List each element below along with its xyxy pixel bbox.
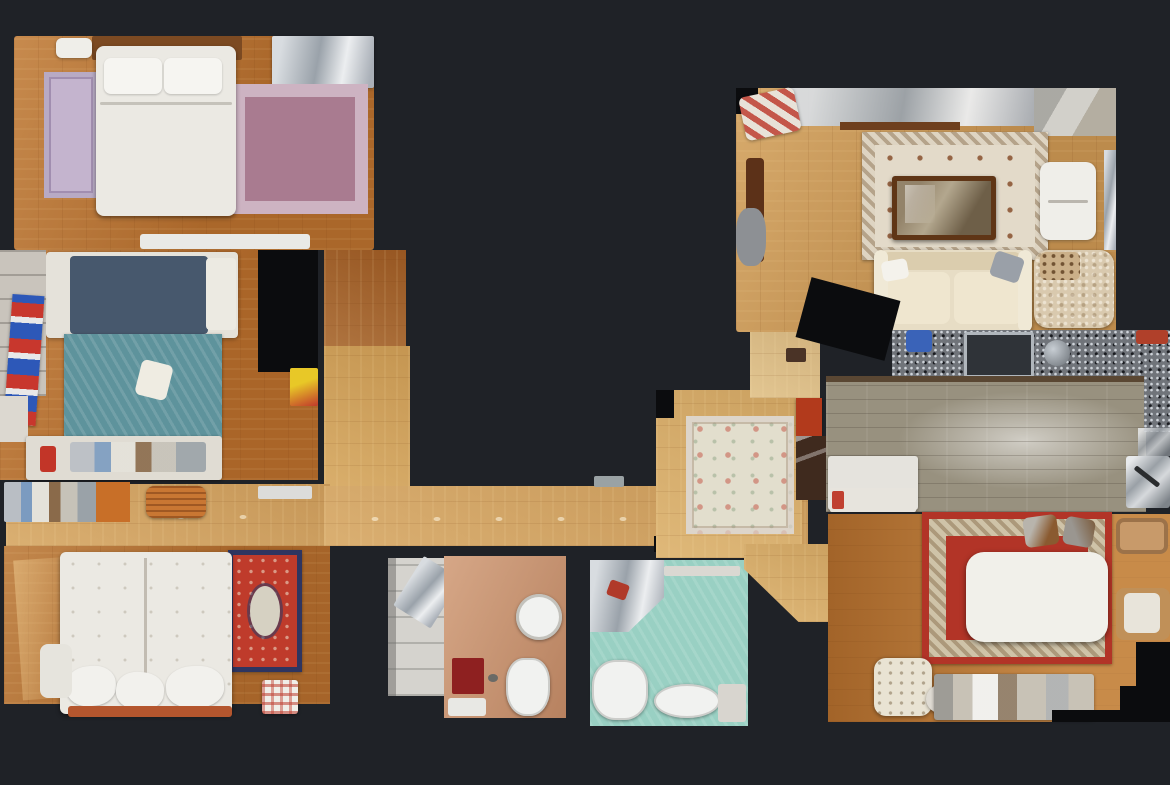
window-band [788,88,1044,126]
pillow [165,665,225,710]
room-dining[interactable] [828,514,1170,722]
dining-table [966,552,1108,642]
rug-floral [686,416,794,534]
fluffy-chair [1034,250,1114,328]
chair-metal [1062,516,1096,549]
dishwasher [1126,456,1170,508]
coffee-table [892,176,996,240]
radiator [140,234,310,249]
striped-pouf [146,486,206,518]
wardrobe-mirror [272,36,374,88]
bidet-sink [654,684,720,718]
room-bedroom-middle-left[interactable] [0,250,318,480]
console-white [830,488,916,512]
rug-oriental-medallion [250,586,280,636]
pillow [64,663,118,708]
wall-void [656,390,674,418]
room-bathroom-teal[interactable] [590,560,748,726]
room-bedroom-top-left[interactable] [14,36,374,250]
armchair-dotted [874,658,932,716]
chair-seat [1124,593,1160,633]
toilet [592,660,648,720]
wall-void [258,250,318,372]
desk-clutter [70,442,206,472]
red-cabinet [796,398,822,436]
console-red-item [832,491,844,509]
glass-reflection [905,185,935,223]
bath-clutter [448,698,486,716]
yellow-magazine-rack [290,368,318,406]
blue-dish [906,330,932,352]
cooking-pot [1044,340,1070,366]
bath-clutter [718,684,746,722]
leopard-pillow [1040,252,1080,280]
kitchen-sink [964,332,1034,378]
desk-cluttered [26,436,222,480]
folded-bedding [206,258,236,330]
shiny-floor-patch [1138,428,1170,456]
white-panel [0,396,28,442]
toilet [506,658,550,716]
room-kitchen[interactable] [826,330,1170,512]
double-bed [96,46,236,216]
room-foyer[interactable] [656,390,802,558]
pillow [164,58,222,94]
shelf-strip [664,566,740,576]
armchair-white [1040,162,1096,240]
round-sink [516,594,562,640]
chair-wood [1116,518,1168,554]
mattress-split [144,558,147,678]
dollhouse-floorplan-view [0,0,1170,785]
rug-oriental [228,550,302,672]
passage-foyer-dining[interactable] [744,544,838,622]
floor-drain [488,674,498,682]
nightstand [56,38,92,58]
orange-basket [96,482,130,522]
gray-ottoman [736,208,766,266]
room-bedroom-bottom-left[interactable] [4,482,330,722]
bath-mat-red [452,658,484,694]
shelf-clutter [4,482,98,522]
hall-wall-shelf [594,476,624,487]
wall-step [1052,710,1170,722]
counter-right [1144,346,1170,432]
chair-wood [1116,588,1170,640]
corridor-bedroom1[interactable] [324,250,406,348]
dark-shelf [796,436,826,500]
corner-cushion [40,644,72,698]
room-living[interactable] [736,88,1116,332]
armchair-seatline [1048,200,1088,203]
rug-lavender [44,72,98,198]
door-mat [258,486,312,499]
wall-mirror-strip [1104,150,1116,250]
duvet-fold [100,102,232,105]
appliance-handle [1134,465,1161,487]
plaid-blanket [262,680,298,714]
pillow [104,58,162,94]
bed-foot-bench [68,706,232,717]
sofa [874,250,1032,332]
mattress-navy [70,256,208,334]
corner-dresser [1034,88,1116,136]
window-frame [840,122,960,130]
counter-clutter-red [1136,330,1168,344]
rug-mauve [232,84,368,214]
chair-metal [1022,514,1060,548]
shower-clutter-red [606,579,630,601]
double-bed [60,552,232,714]
small-dark-item [786,348,806,362]
red-toy [40,446,56,472]
corridor-bedroom1-lower[interactable] [324,346,410,488]
room-bathroom-center[interactable] [388,556,566,720]
